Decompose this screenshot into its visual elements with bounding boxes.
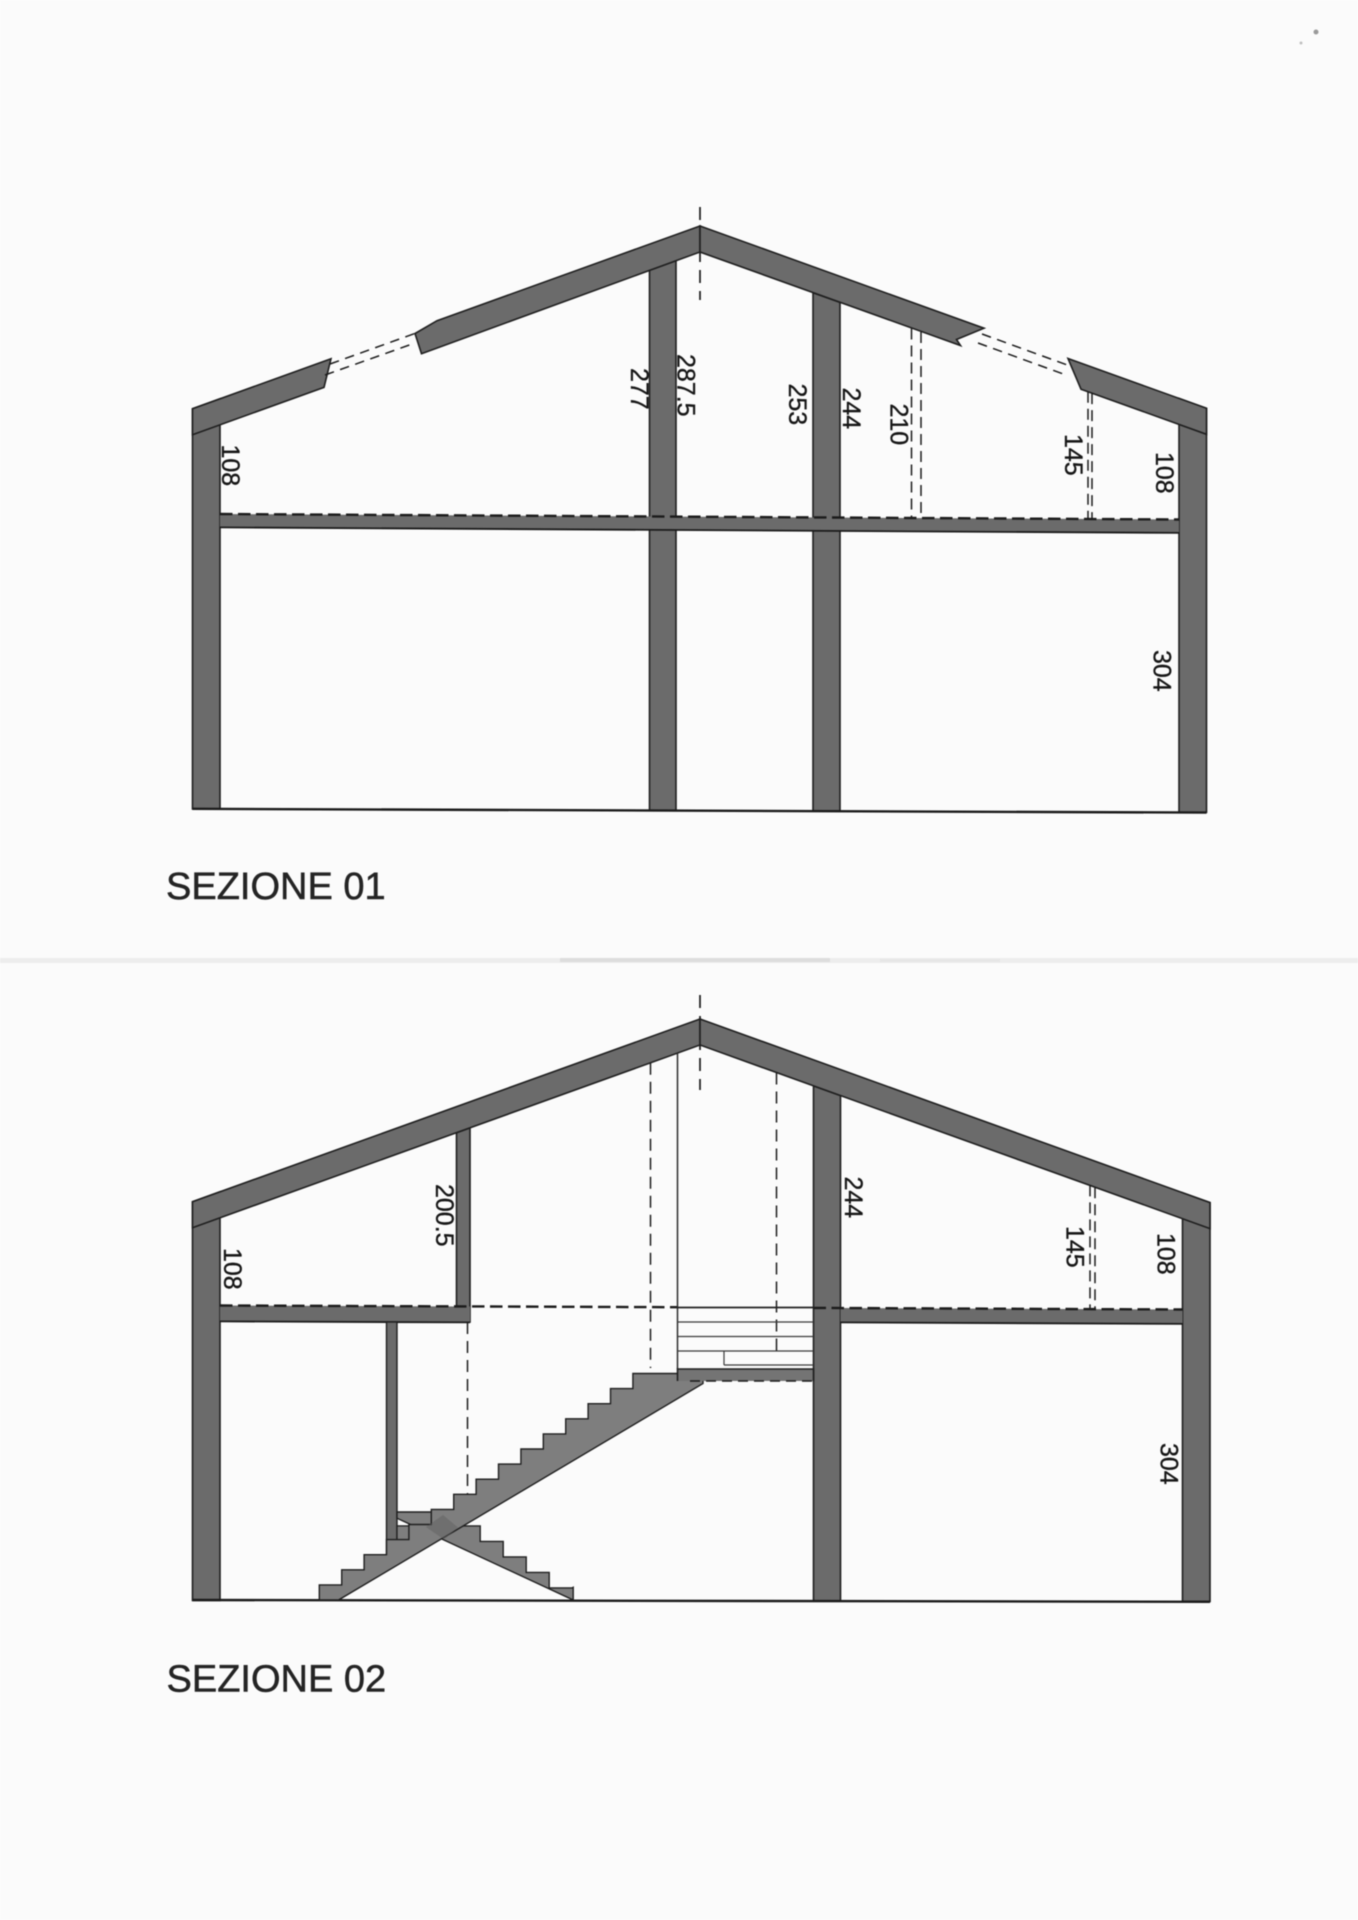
svg-text:277: 277: [625, 368, 653, 410]
svg-text:108: 108: [1152, 1233, 1180, 1275]
svg-text:244: 244: [839, 1177, 867, 1219]
svg-text:253: 253: [783, 384, 811, 426]
svg-text:108: 108: [216, 445, 244, 487]
svg-text:108: 108: [1150, 452, 1178, 494]
svg-text:200.5: 200.5: [430, 1184, 458, 1247]
svg-text:244: 244: [837, 388, 865, 430]
svg-text:145: 145: [1059, 434, 1087, 476]
svg-text:145: 145: [1061, 1226, 1089, 1268]
svg-text:304: 304: [1148, 650, 1176, 692]
svg-text:210: 210: [885, 404, 913, 446]
svg-text:SEZIONE 01: SEZIONE 01: [166, 866, 386, 908]
svg-text:304: 304: [1155, 1443, 1183, 1485]
svg-text:108: 108: [218, 1248, 246, 1290]
svg-text:SEZIONE 02: SEZIONE 02: [167, 1659, 387, 1701]
svg-text:287.5: 287.5: [672, 354, 700, 417]
